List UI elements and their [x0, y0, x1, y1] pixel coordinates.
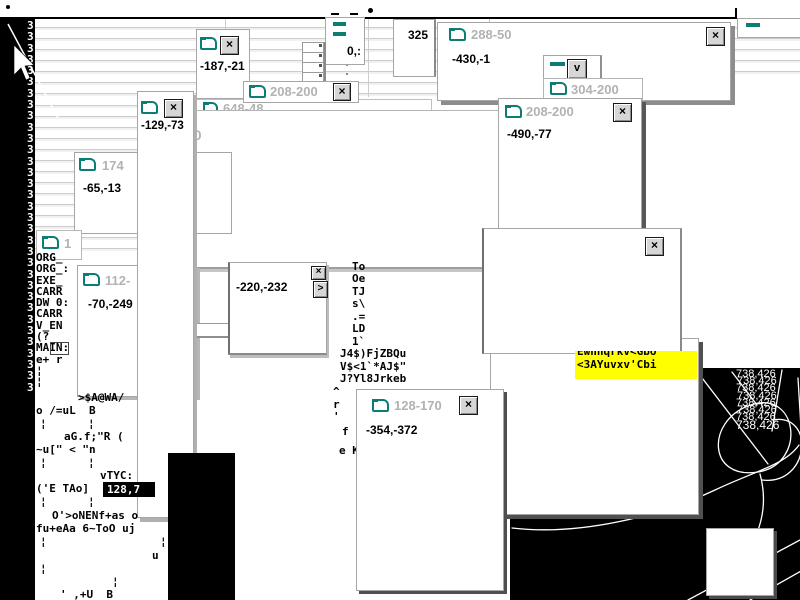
- scroll-right-button[interactable]: >: [313, 281, 328, 298]
- garbled-text-line: >$A@WA/: [78, 392, 124, 403]
- garbled-text-line: ¦: [88, 457, 95, 468]
- coord-value: -65,-13: [83, 181, 121, 195]
- window-title: 1: [64, 236, 71, 251]
- document-icon: [200, 37, 217, 50]
- drawn-line-and-cursor: [0, 19, 70, 129]
- window-title: 112-: [105, 273, 130, 288]
- garbled-text-line: V$<1`*AJ$": [340, 361, 406, 372]
- coord-value: -430,-1: [452, 52, 490, 66]
- window-title: 128-170: [394, 398, 442, 413]
- highlighted-glitch-text: Ewnnqrkv<Gbo <3AYuvxv'Cbi: [575, 351, 697, 379]
- inverted-coord-readout: 128,7: [103, 482, 155, 497]
- document-icon: [42, 236, 59, 249]
- garbled-text-line: vTYC:: [100, 470, 133, 481]
- icon-dash: [333, 22, 346, 26]
- garbled-text-line: ': [333, 411, 340, 422]
- coord-value: -70,-249: [88, 297, 133, 311]
- document-icon: [249, 85, 266, 98]
- close-button[interactable]: ×: [459, 396, 478, 415]
- garbled-text-line: ¦: [88, 496, 95, 507]
- highlight-line: Ewnnqrkv<Gbo: [577, 351, 697, 357]
- black-region-bottom-left: [168, 453, 235, 600]
- titlebar-208-200-a[interactable]: 208-200 ×: [243, 81, 359, 103]
- minimize-mark[interactable]: [331, 13, 339, 15]
- desktop-dot: [368, 8, 373, 13]
- garbled-text-line: ' ,+U B: [60, 589, 113, 600]
- garbled-text-line: .=: [352, 311, 365, 322]
- garbled-text-line: aG.f;"R (: [64, 431, 124, 442]
- coord-value: -354,-372: [366, 423, 417, 437]
- close-button[interactable]: ×: [333, 83, 351, 101]
- document-icon: [372, 399, 389, 412]
- garbled-text-line: ¦: [40, 457, 47, 468]
- mouse-cursor: [14, 45, 34, 80]
- window-title: 304-200: [571, 82, 619, 97]
- garbled-source-text: ORG_ ORG_: EXE_ CARR DW 0: CARR V_EN (? …: [36, 252, 69, 388]
- garbled-text-line: o /=uL B: [36, 405, 96, 416]
- garbled-text-line: ¦: [40, 418, 47, 429]
- garbled-text-line: u: [152, 550, 159, 561]
- coord-value: -129,-73: [141, 120, 184, 132]
- selection-box: [50, 342, 69, 355]
- icon-dash: [550, 62, 565, 66]
- coord-value: 325: [408, 28, 428, 42]
- garbled-text-line: f: [342, 426, 349, 437]
- coord-value: 0,:: [347, 44, 361, 58]
- garbled-text-line: To: [352, 261, 365, 272]
- garbled-text-line: J?Yl8Jrkeb: [340, 373, 406, 384]
- document-icon: [449, 28, 466, 41]
- plain-white-box: [706, 528, 774, 596]
- garbled-text-line: fu+eAa 6~ToO uj: [36, 523, 135, 534]
- window-title: 208-200: [270, 84, 318, 99]
- close-button[interactable]: ×: [164, 99, 183, 118]
- popup-window-220: -220,-232 × >: [228, 262, 327, 355]
- horizontal-divider: [0, 17, 737, 19]
- dropdown-button[interactable]: v: [567, 59, 587, 79]
- window-fragment-325: 325: [393, 19, 436, 77]
- close-button[interactable]: ×: [645, 237, 664, 256]
- garbled-text-line: ¦: [40, 536, 47, 547]
- garbled-text-line: LD: [352, 323, 365, 334]
- document-icon: [505, 105, 522, 118]
- window-fragment-combo-top: 0,:: [325, 17, 365, 65]
- rows-col-divider: [368, 19, 369, 97]
- minimize-mark[interactable]: [350, 13, 358, 15]
- desktop-dot: [6, 5, 10, 9]
- garbled-text-line: 1`: [352, 336, 365, 347]
- garbled-text-line: ¦: [112, 576, 119, 587]
- window-edge-band: [188, 323, 232, 338]
- canvas-coord-readout: 738,426: [736, 418, 779, 426]
- coord-value: -490,-77: [507, 127, 552, 141]
- garbled-text-line: ¦: [40, 563, 47, 574]
- document-icon: [141, 101, 158, 114]
- close-button[interactable]: ×: [706, 27, 725, 46]
- garbled-text-line: Oe: [352, 273, 365, 284]
- garbled-text-line: ^: [333, 386, 340, 397]
- garbled-text-line: ~u[" < "n: [36, 444, 96, 455]
- highlight-line: <3AYuvxv'Cbi: [577, 359, 697, 370]
- icon-dash: [746, 23, 760, 27]
- garbled-text-line: ¦: [160, 536, 167, 547]
- divider-end-tick: [735, 8, 737, 18]
- garbled-text-line: TJ: [352, 286, 365, 297]
- window-title: 208-200: [526, 104, 574, 119]
- garbled-text-line: s\: [352, 298, 365, 309]
- close-button[interactable]: ×: [220, 36, 239, 55]
- canvas-coord-readout: 738,426: [736, 382, 776, 390]
- glitched-desktop: 3 3 3 3 3 3 3 3 3 3 3 3 3 3 3 3 3 3 3 3 …: [0, 0, 800, 600]
- popup-window-187: × -187,-21: [196, 29, 250, 99]
- coord-value: -187,-21: [200, 59, 245, 73]
- window-title: 288-50: [471, 27, 511, 42]
- popup-window-208b: 208-200 × -490,-77: [498, 98, 642, 230]
- garbled-text-line: ¦: [88, 418, 95, 429]
- window-fragment-corner: [737, 18, 800, 38]
- document-icon: [83, 273, 100, 286]
- icon-dash: [333, 32, 346, 36]
- coord-value: -220,-232: [236, 280, 287, 294]
- document-icon: [550, 82, 567, 95]
- window-title: 174: [102, 158, 124, 173]
- garbled-text-line: J4$)FjZBQu: [340, 348, 406, 359]
- garbled-text-line: ¦: [40, 496, 47, 507]
- close-button[interactable]: ×: [613, 103, 632, 122]
- garbled-text-line: O'>oNENf+as o: [52, 510, 138, 521]
- window-fragment-F: ×: [482, 228, 682, 354]
- document-icon: [79, 158, 96, 171]
- garbled-text-line: ('E TAo]: [36, 483, 89, 494]
- garbled-text-line: r: [333, 399, 340, 410]
- popup-window-128: 128-170 × -354,-372: [356, 389, 504, 591]
- close-button-fragment[interactable]: ×: [311, 266, 326, 280]
